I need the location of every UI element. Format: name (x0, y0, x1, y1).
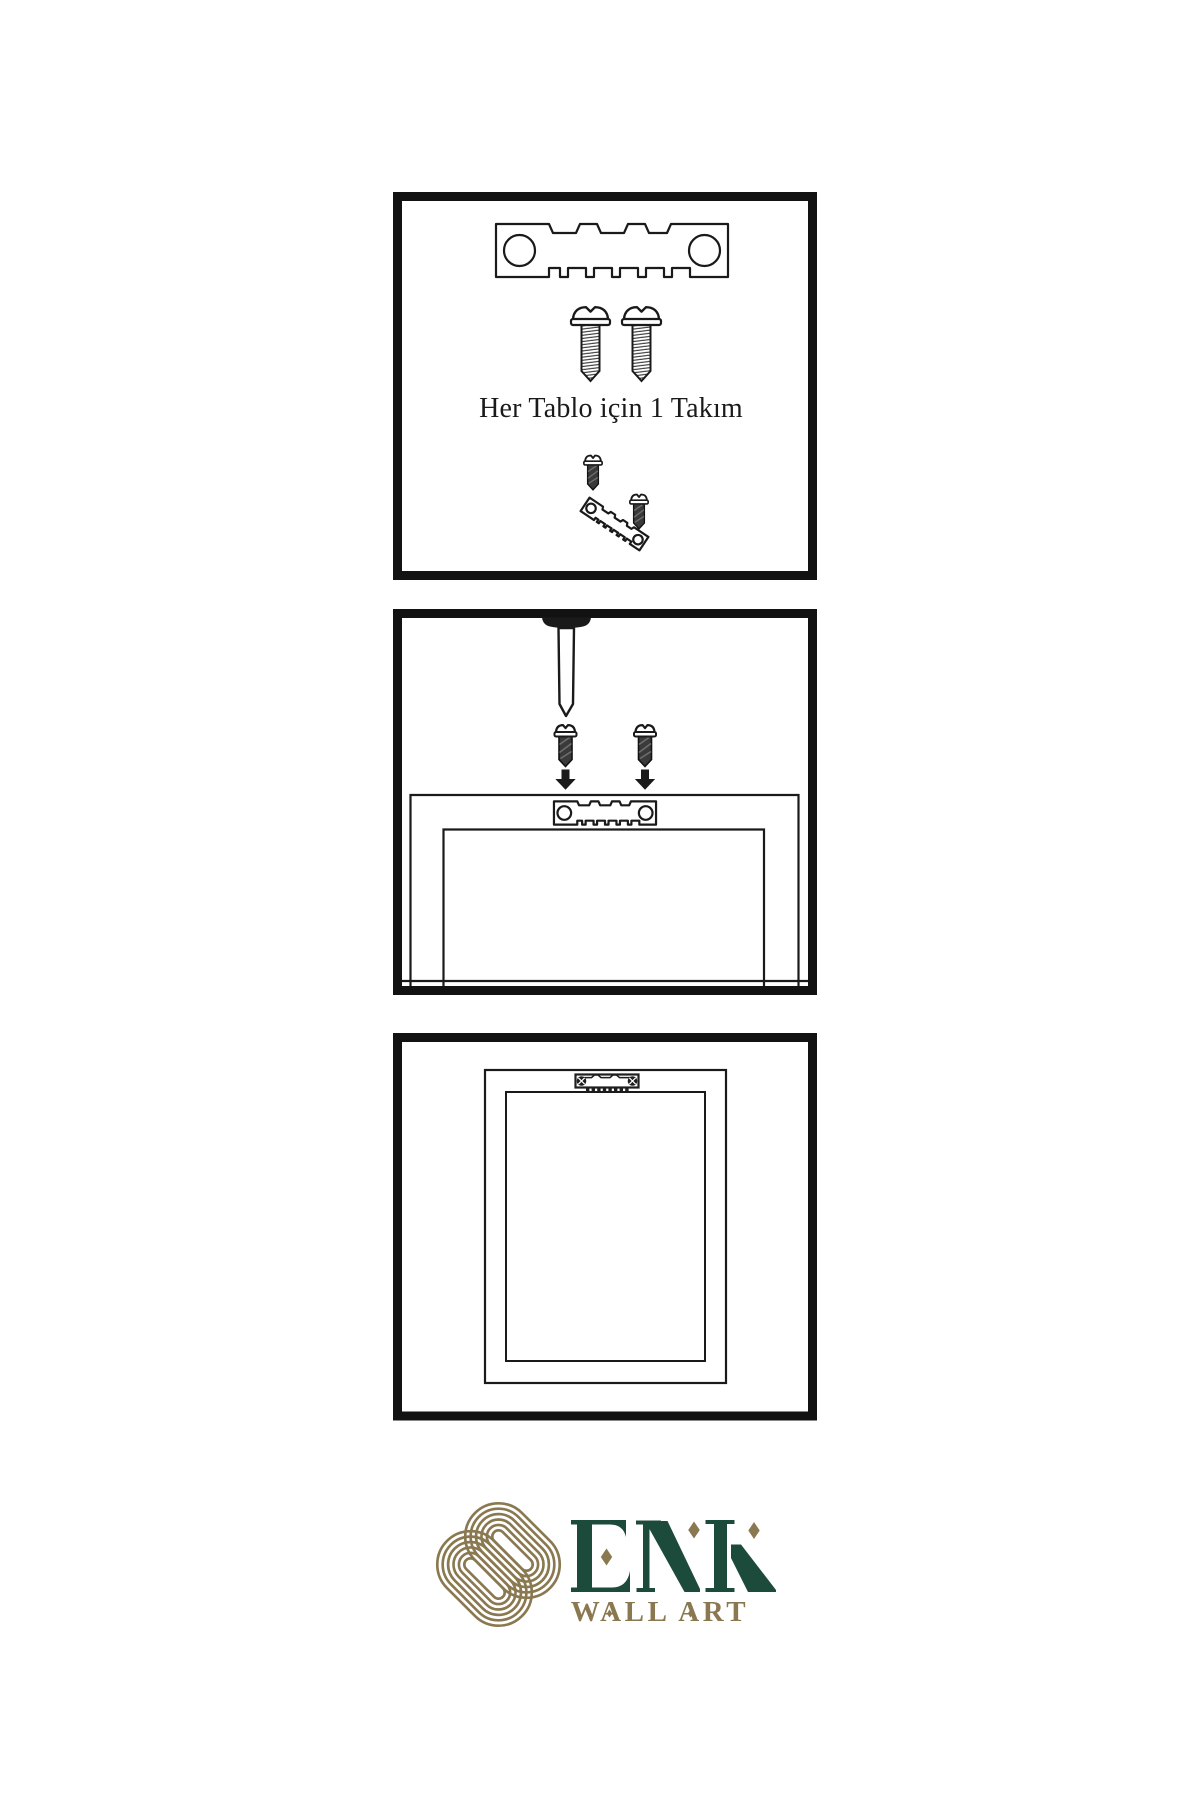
svg-text:WALL ART: WALL ART (571, 1596, 749, 1628)
svg-text:Her Tablo için 1 Takım: Her Tablo için 1 Takım (479, 393, 743, 424)
